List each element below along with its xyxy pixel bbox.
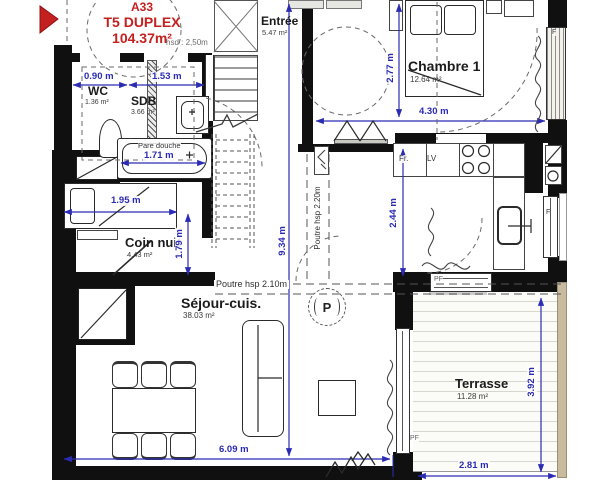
room-name-sdb: SDB bbox=[131, 95, 156, 108]
room-area-sejour: 38.03 m² bbox=[183, 312, 215, 320]
wall-segment bbox=[52, 466, 398, 480]
french-window-label-terrace: PF bbox=[434, 276, 443, 283]
kitchen-sink bbox=[497, 206, 522, 245]
french-window-sejour-line bbox=[402, 331, 403, 451]
room-area-entree: 5.47 m² bbox=[262, 29, 287, 37]
cabinet bbox=[288, 0, 324, 9]
chair bbox=[141, 433, 167, 460]
stair-flight bbox=[214, 55, 258, 121]
hall-cabinet bbox=[314, 146, 329, 175]
paren-left bbox=[314, 298, 321, 316]
dim-chambre-depth: 2.77 m bbox=[386, 52, 396, 84]
north-arrow-icon bbox=[40, 6, 58, 33]
window-sill bbox=[429, 292, 487, 295]
dishwasher-label: LV bbox=[427, 155, 436, 163]
paren-right bbox=[333, 298, 340, 316]
dim-coin-nuit-depth: 1.79 m bbox=[175, 228, 185, 260]
pillow bbox=[70, 188, 95, 224]
dim-sejour-width: 6.09 m bbox=[218, 445, 250, 455]
washbasin-bowl bbox=[181, 101, 204, 129]
window-reveal bbox=[559, 193, 567, 261]
nightstand bbox=[486, 0, 502, 14]
room-area-sdb: 3.66 m² bbox=[131, 109, 155, 116]
beam-label-210: Poutre hsp 2.10m bbox=[214, 280, 289, 289]
stair-landing-box bbox=[214, 0, 258, 52]
dim-plan-depth: 9.34 m bbox=[278, 225, 288, 257]
pillow bbox=[444, 5, 476, 35]
room-name-coin-nuit: Coin nuit bbox=[125, 236, 181, 250]
room-name-chambre1: Chambre 1 bbox=[408, 59, 480, 74]
chair bbox=[170, 361, 196, 388]
dim-kitchen-depth: 2.44 m bbox=[389, 197, 399, 229]
fridge-label: Fr. bbox=[399, 155, 408, 163]
floor-plan: A33 T5 DUPLEX 104.37m² hsd : 2,50m Entré… bbox=[0, 0, 611, 480]
dining-table bbox=[112, 388, 196, 433]
dresser bbox=[504, 0, 534, 17]
wall-segment bbox=[120, 53, 144, 62]
dim-terrasse-width: 2.81 m bbox=[458, 461, 490, 471]
chair bbox=[141, 361, 167, 388]
window-kitchen-line bbox=[550, 198, 551, 256]
dim-bath-length: 1.71 m bbox=[143, 151, 175, 161]
chair bbox=[170, 433, 196, 460]
wall-segment bbox=[525, 140, 543, 193]
parking-letter: P bbox=[323, 300, 332, 315]
dim-coin-nuit-width: 1.95 m bbox=[110, 196, 142, 206]
dim-sdb-width: 1.53 m bbox=[151, 72, 183, 82]
wall-segment bbox=[298, 144, 395, 152]
counter-divider bbox=[493, 143, 494, 177]
room-name-sejour: Séjour-cuis. bbox=[181, 296, 261, 311]
window-label-kitchen: F bbox=[546, 209, 550, 216]
door-opening bbox=[436, 134, 486, 143]
oven-box bbox=[545, 145, 562, 164]
cabinet bbox=[326, 0, 362, 9]
french-window-label-sejour: PF bbox=[410, 435, 419, 442]
terrace-edge bbox=[557, 282, 567, 478]
room-name-wc: WC bbox=[88, 85, 108, 98]
nightstand bbox=[389, 0, 403, 31]
unit-type: T5 DUPLEX bbox=[84, 14, 200, 30]
chair bbox=[112, 361, 138, 388]
unit-id: A33 bbox=[84, 0, 200, 14]
french-window-sejour bbox=[396, 328, 410, 454]
room-area-wc: 1.36 m² bbox=[85, 99, 109, 106]
parking-symbol: P bbox=[308, 288, 346, 326]
wall-segment bbox=[548, 0, 567, 28]
dim-wc-width: 0.90 m bbox=[83, 72, 115, 82]
room-name-terrasse: Terrasse bbox=[455, 377, 508, 391]
duct-shaft bbox=[78, 288, 127, 340]
room-area-coin-nuit: 4.43 m² bbox=[127, 251, 152, 259]
pillow bbox=[410, 5, 442, 35]
room-area-terrasse: 11.28 m² bbox=[457, 393, 488, 401]
closet-folding-door-bar bbox=[334, 139, 388, 144]
dim-chambre-width: 4.30 m bbox=[418, 107, 450, 117]
ceiling-height-note: hsd : 2,50m bbox=[166, 39, 208, 47]
chair bbox=[112, 433, 138, 460]
hob-box bbox=[545, 166, 562, 185]
beam-label-220: Poutre hsp 2.20m bbox=[314, 184, 322, 251]
coffee-table bbox=[318, 380, 356, 416]
wall-segment bbox=[302, 2, 313, 152]
window-label-chambre: F bbox=[552, 29, 556, 36]
sofa bbox=[242, 320, 284, 437]
wall-segment bbox=[52, 272, 215, 286]
wall-segment bbox=[395, 292, 413, 330]
room-name-entree: Entrée bbox=[261, 15, 298, 28]
wall-segment bbox=[54, 53, 80, 62]
duct-shaft bbox=[76, 156, 118, 180]
counter-divider bbox=[459, 143, 460, 177]
dim-terrasse-depth: 3.92 m bbox=[527, 366, 537, 398]
shower-screen-label: Pare douche bbox=[138, 142, 181, 150]
room-area-chambre1: 12.64 m² bbox=[410, 76, 442, 84]
window-chambre bbox=[546, 27, 566, 120]
shelf bbox=[77, 230, 118, 240]
